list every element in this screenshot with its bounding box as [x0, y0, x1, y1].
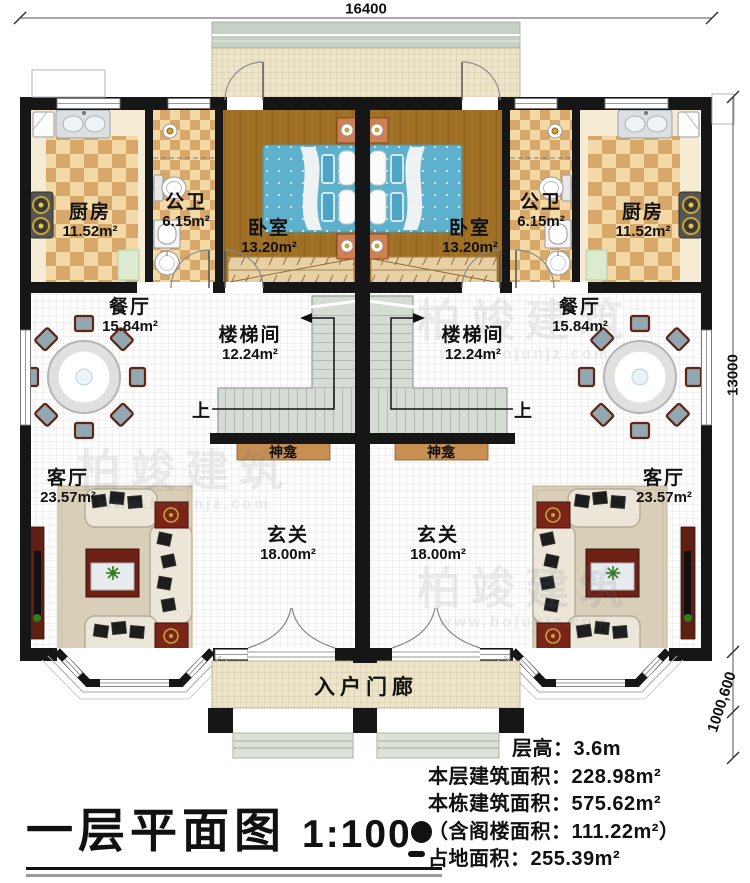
- round-basin-icon: [155, 251, 179, 275]
- room-label-dining-right: 餐厅 15.84m²: [552, 297, 608, 335]
- info-footprint-area: 占地面积：255.39m²: [428, 846, 679, 874]
- room-label-foyer-right: 玄关 18.00m²: [410, 525, 466, 563]
- room-label-bath-right: 公卫 6.15m²: [517, 192, 565, 230]
- dimension-top: 16400: [345, 1, 387, 18]
- title-rule: [26, 874, 442, 877]
- room-area: 15.84m²: [102, 318, 158, 335]
- sink-icon: [56, 110, 110, 138]
- stair-up-label-left: 上: [192, 397, 210, 423]
- room-label-bedroom-left: 卧室 13.20m²: [241, 218, 297, 256]
- room-label-stairwell-left: 楼梯间 12.24m²: [218, 325, 281, 363]
- stove-icon: [679, 192, 702, 238]
- room-label-kitchen-right: 厨房 11.52m²: [615, 202, 670, 240]
- pillow: [339, 151, 355, 185]
- tv-cabinet-icon: [681, 527, 695, 639]
- wardrobe-icon: [228, 257, 354, 284]
- room-area: 11.52m²: [615, 223, 670, 240]
- stair-up-label-right: 上: [514, 397, 532, 423]
- room-name: 厨房: [62, 202, 117, 223]
- info-block: 层高：3.6m 本层建筑面积：228.98m² 本栋建筑面积：575.62m² …: [428, 736, 679, 874]
- room-name: 楼梯间: [441, 325, 504, 346]
- room-area: 13.20m²: [241, 239, 297, 256]
- room-name: 公卫: [517, 192, 565, 213]
- room-name: 厨房: [615, 202, 670, 223]
- cutting-board: [586, 250, 607, 280]
- dining-chair-icon: [631, 316, 649, 331]
- room-name: 餐厅: [102, 297, 158, 318]
- room-area: 12.24m²: [441, 346, 504, 363]
- title-rule: [26, 867, 442, 870]
- shrine-label-right: 神龛: [427, 442, 455, 462]
- room-area: 18.00m²: [260, 546, 316, 563]
- dimension-right: 13000: [725, 354, 742, 396]
- sink-icon: [618, 110, 672, 138]
- coffee-table-icon: [86, 549, 139, 597]
- room-label-stairwell-right: 楼梯间 12.24m²: [441, 325, 504, 363]
- room-area: 13.20m²: [442, 239, 498, 256]
- room-area: 23.57m²: [636, 489, 692, 506]
- pillow: [370, 151, 386, 185]
- info-floor-height: 层高：3.6m: [512, 736, 679, 764]
- floor-plan-canvas: 柏竣建筑 www.bojunjz.com 柏竣建筑 www.bojunjz.co…: [0, 0, 750, 883]
- pillow: [370, 190, 386, 224]
- room-name: 楼梯间: [218, 325, 281, 346]
- fridge-icon: [678, 112, 699, 137]
- room-name: 客厅: [636, 468, 692, 489]
- shrine-label-left: 神龛: [269, 442, 297, 462]
- room-label-foyer-left: 玄关 18.00m²: [260, 525, 316, 563]
- room-label-living-right: 客厅 23.57m²: [636, 468, 692, 506]
- dining-chair-icon: [75, 316, 93, 331]
- room-name: 客厅: [40, 468, 96, 489]
- dining-chair-icon: [631, 423, 649, 438]
- wardrobe-icon: [371, 257, 497, 284]
- stove-icon: [30, 192, 53, 238]
- info-floor-area: 本层建筑面积：228.98m²: [428, 764, 679, 792]
- info-attic-area: （含阁楼面积：111.22m²）: [428, 819, 679, 847]
- cutting-board: [118, 250, 139, 280]
- round-basin-icon: [546, 251, 570, 275]
- pillow: [339, 190, 355, 224]
- plan-title: 一层平面图: [26, 792, 286, 861]
- dining-chair-icon: [579, 368, 594, 386]
- bay-window-left: [42, 648, 227, 699]
- room-label-dining-left: 餐厅 15.84m²: [102, 297, 158, 335]
- room-label-living-left: 客厅 23.57m²: [40, 468, 96, 506]
- room-area: 6.15m²: [162, 213, 210, 230]
- dining-chair-icon: [130, 368, 145, 386]
- tv-cabinet-icon: [30, 527, 44, 639]
- room-area: 12.24m²: [218, 346, 281, 363]
- room-area: 18.00m²: [410, 546, 466, 563]
- plan-scale: 1:100: [302, 813, 412, 857]
- dining-chair-icon: [686, 368, 701, 386]
- room-name: 卧室: [241, 218, 297, 239]
- room-name: 玄关: [410, 525, 466, 546]
- room-name: 公卫: [162, 192, 210, 213]
- room-name: 卧室: [442, 218, 498, 239]
- title-block: 一层平面图 1:100: [26, 792, 442, 877]
- bay-window-right: [498, 648, 683, 699]
- info-building-area: 本栋建筑面积：575.62m²: [428, 791, 679, 819]
- fridge-icon: [33, 112, 54, 137]
- room-area: 6.15m²: [517, 213, 565, 230]
- room-name: 餐厅: [552, 297, 608, 318]
- room-name: 玄关: [260, 525, 316, 546]
- room-label-kitchen-left: 厨房 11.52m²: [62, 202, 117, 240]
- room-area: 23.57m²: [40, 489, 96, 506]
- dining-chair-icon: [75, 423, 93, 438]
- room-label-bedroom-right: 卧室 13.20m²: [442, 218, 498, 256]
- rear-porch: [212, 22, 520, 98]
- coffee-table-icon: [586, 549, 639, 597]
- room-area: 11.52m²: [62, 223, 117, 240]
- room-area: 15.84m²: [552, 318, 608, 335]
- entry-porch-label: 入户门廊: [314, 671, 418, 701]
- room-label-bath-left: 公卫 6.15m²: [162, 192, 210, 230]
